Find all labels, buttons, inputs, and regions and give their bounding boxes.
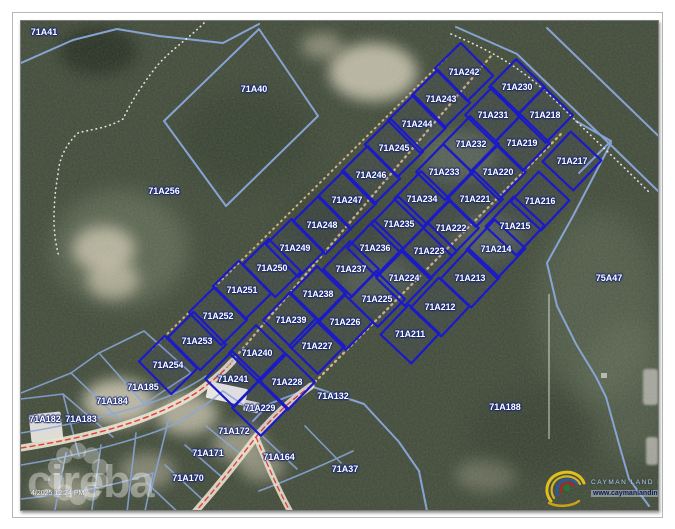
parcel-label-71A132: 71A132 [317, 391, 349, 401]
parcel-label-75A47: 75A47 [596, 273, 623, 283]
page: { "map": { "title": "Cadastral aerial pa… [0, 0, 675, 529]
parcel-label-71A256: 71A256 [148, 186, 180, 196]
parcel-label-71A223: 71A223 [414, 246, 445, 256]
parcel-label-71A212: 71A212 [425, 302, 456, 312]
parcel-label-71A219: 71A219 [507, 138, 538, 148]
parcel-label-71A231: 71A231 [478, 110, 509, 120]
parcel-label-71A224: 71A224 [389, 273, 420, 283]
parcel-label-71A184: 71A184 [96, 396, 128, 406]
parcel-label-71A170: 71A170 [172, 473, 204, 483]
parcel-label-71A235: 71A235 [384, 219, 415, 229]
parcel-label-71A164: 71A164 [263, 452, 295, 462]
cayman-land-info-text: CAYMAN LAND INFO [591, 479, 659, 486]
parcel-label-71A41: 71A41 [31, 27, 58, 37]
parcel-label-71A244: 71A244 [402, 119, 433, 129]
parcel-label-71A182: 71A182 [29, 414, 61, 424]
parcel-label-71A242: 71A242 [449, 67, 480, 77]
parcel-label-71A222: 71A222 [436, 223, 467, 233]
parcel-label-71A241: 71A241 [218, 374, 249, 384]
parcel-label-71A171: 71A171 [192, 448, 224, 458]
parcel-label-71A185: 71A185 [127, 382, 159, 392]
parcel-label-71A247: 71A247 [332, 195, 363, 205]
parcel-label-71A246: 71A246 [356, 170, 387, 180]
parcel-label-71A214: 71A214 [481, 244, 512, 254]
cayman-land-info-url: www.caymanlandinfo.ky [591, 490, 659, 497]
parcel-label-71A230: 71A230 [502, 82, 533, 92]
parcel-label-71A233: 71A233 [429, 167, 460, 177]
parcel-label-71A218: 71A218 [530, 110, 561, 120]
parcel-label-71A228: 71A228 [272, 377, 303, 387]
parcel-label-71A183: 71A183 [65, 414, 97, 424]
map-timestamp: 4/2025 12:24 PM [31, 490, 84, 497]
parcel-label-71A220: 71A220 [483, 167, 514, 177]
cireba-watermark: cireba [27, 459, 154, 504]
parcel-label-71A254: 71A254 [153, 360, 184, 370]
parcel-label-71A250: 71A250 [257, 263, 288, 273]
parcel-label-71A239: 71A239 [276, 315, 307, 325]
parcel-label-71A172: 71A172 [218, 426, 250, 436]
parcel-label-71A215: 71A215 [500, 221, 531, 231]
parcel-label-71A217: 71A217 [557, 156, 588, 166]
parcel-label-71A252: 71A252 [203, 311, 234, 321]
parcel-label-71A226: 71A226 [330, 317, 361, 327]
parcel-label-71A229: 71A229 [245, 403, 276, 413]
parcel-label-71A188: 71A188 [489, 402, 521, 412]
parcel-label-71A249: 71A249 [280, 243, 311, 253]
parcel-label-71A240: 71A240 [242, 348, 273, 358]
parcel-label-71A253: 71A253 [182, 336, 213, 346]
parcel-label-71A236: 71A236 [360, 243, 391, 253]
parcel-label-71A237: 71A237 [336, 264, 367, 274]
parcel-label-71A221: 71A221 [460, 194, 491, 204]
parcel-label-71A232: 71A232 [456, 139, 487, 149]
cayman-land-info-logo: CAYMAN LAND INFO www.caymanlandinfo.ky [541, 467, 659, 509]
parcel-label-71A243: 71A243 [426, 94, 457, 104]
parcel-label-71A213: 71A213 [455, 273, 486, 283]
parcel-label-71A238: 71A238 [303, 289, 334, 299]
parcel-label-71A245: 71A245 [379, 143, 410, 153]
parcel-label-71A37: 71A37 [332, 464, 359, 474]
map-world-layer: 71A24271A24371A24471A24571A24671A24771A2… [20, 20, 659, 511]
parcel-label-71A211: 71A211 [395, 329, 425, 339]
cayman-land-info-swirl-icon [541, 467, 587, 509]
parcel-label-71A248: 71A248 [307, 220, 338, 230]
parcel-label-71A225: 71A225 [362, 294, 393, 304]
parcel-label-71A227: 71A227 [302, 341, 333, 351]
parcel-label-71A216: 71A216 [525, 196, 556, 206]
parcel-label-71A234: 71A234 [407, 194, 438, 204]
aerial-map: 71A24271A24371A24471A24571A24671A24771A2… [20, 20, 659, 511]
parcel-label-71A40: 71A40 [241, 84, 268, 94]
parcel-label-71A251: 71A251 [227, 285, 258, 295]
